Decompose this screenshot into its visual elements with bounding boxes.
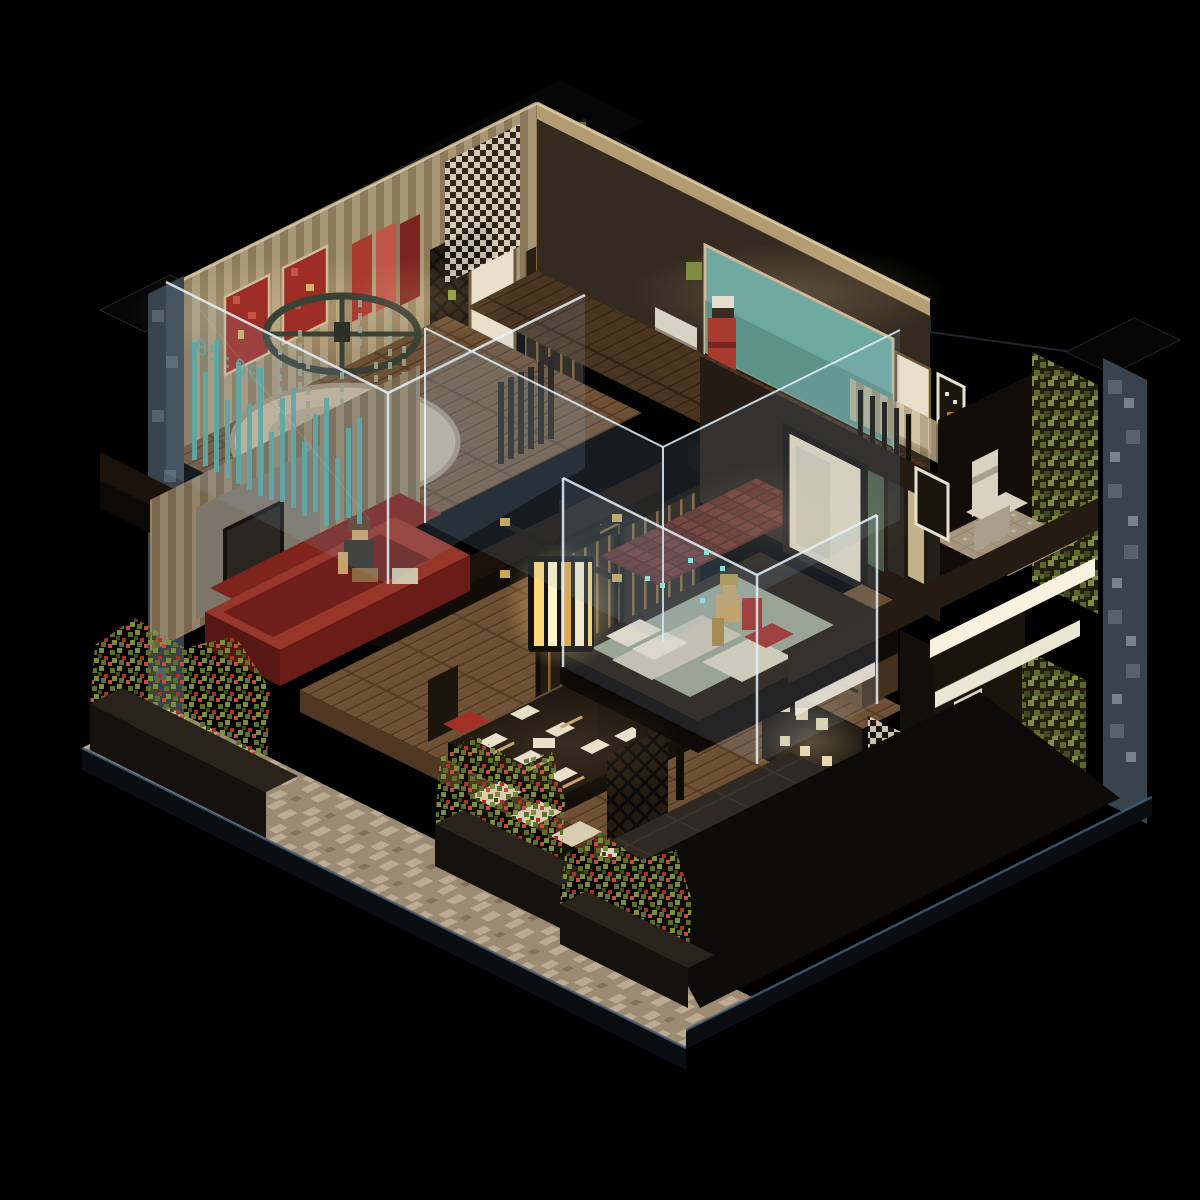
voxel-house-diorama: 05:00 [0,0,1200,1200]
potted-plant-study [686,262,702,280]
isometric-render: 05:00 [0,0,1200,1200]
stone-pillar-right [1103,358,1147,824]
